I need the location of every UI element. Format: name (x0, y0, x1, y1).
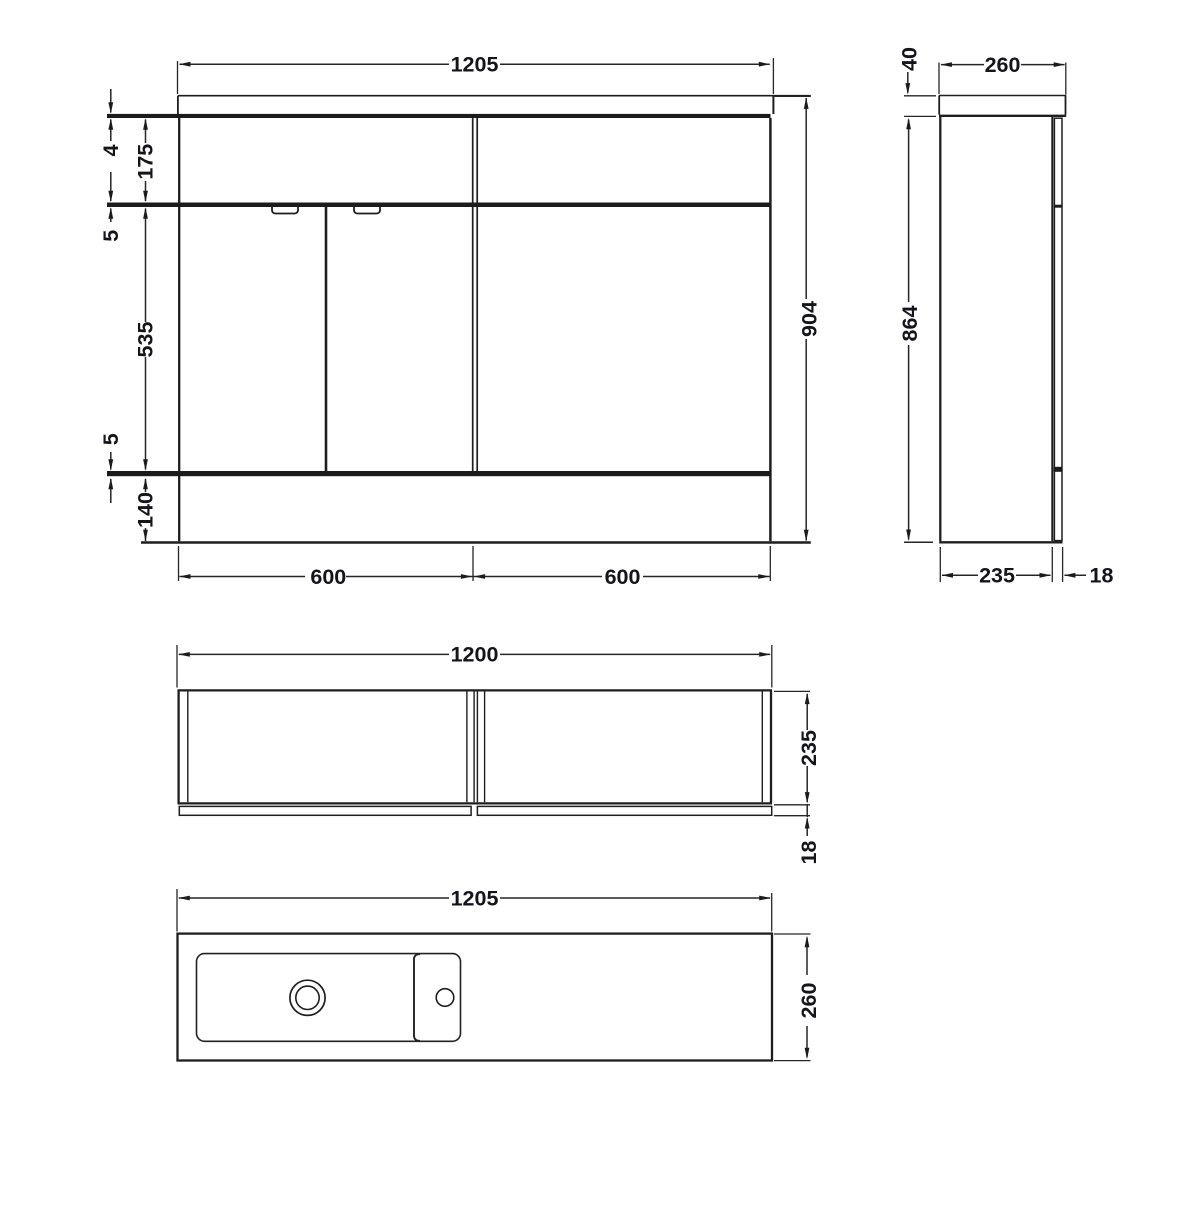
svg-text:864: 864 (898, 306, 922, 342)
svg-text:235: 235 (797, 730, 821, 766)
svg-text:235: 235 (979, 564, 1015, 588)
svg-text:18: 18 (797, 841, 821, 865)
svg-text:535: 535 (134, 322, 158, 358)
svg-text:904: 904 (798, 301, 822, 337)
svg-text:40: 40 (898, 47, 922, 71)
svg-text:175: 175 (134, 144, 158, 180)
svg-text:260: 260 (985, 53, 1021, 77)
svg-text:5: 5 (99, 230, 123, 242)
svg-text:1200: 1200 (451, 643, 499, 667)
svg-text:18: 18 (1090, 564, 1114, 588)
svg-text:260: 260 (797, 983, 821, 1019)
svg-text:600: 600 (310, 565, 346, 589)
svg-text:4: 4 (99, 144, 123, 156)
svg-text:5: 5 (99, 433, 123, 445)
svg-text:1205: 1205 (451, 53, 499, 77)
svg-text:140: 140 (134, 492, 158, 528)
svg-text:600: 600 (605, 565, 641, 589)
svg-text:1205: 1205 (451, 886, 499, 910)
